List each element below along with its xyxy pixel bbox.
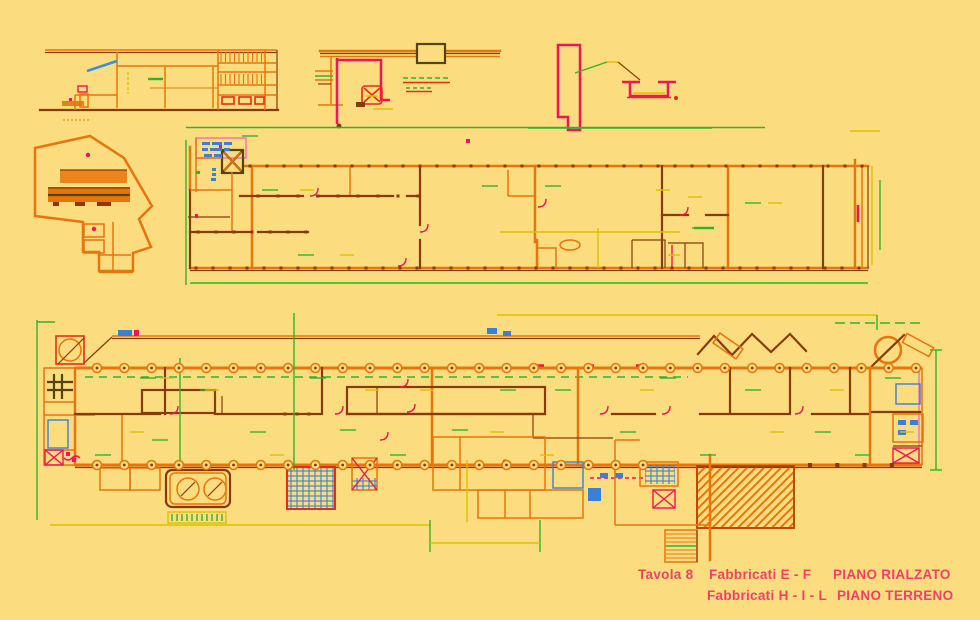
site-plan-drawing [35, 136, 152, 273]
lower-floor-plan [37, 313, 942, 562]
section-drawing [40, 50, 278, 120]
hatched-ramp-1 [713, 333, 743, 359]
tanks-detail [166, 470, 230, 523]
stair-shaft-symbol [222, 150, 243, 173]
center-annex-rooms [433, 437, 643, 522]
hatched-ramp-2 [902, 334, 933, 357]
caption-fabbricati-2: Fabbricati H - I - L [707, 588, 827, 603]
riser-detail-drawing [528, 45, 712, 130]
caption-fabbricati-1: Fabbricati E - F [709, 567, 811, 582]
caption-tavola: Tavola 8 [638, 567, 693, 582]
wc-block-1 [287, 467, 335, 509]
drawing-sheet: Tavola 8 Fabbricati E - F PIANO RIALZATO… [0, 0, 980, 620]
fan-symbol-right [872, 335, 904, 366]
stairs-detail [665, 530, 697, 562]
wc-detail-drawing [315, 44, 500, 129]
hatched-zone [697, 466, 794, 528]
upper-floor-plan [186, 128, 880, 286]
fan-symbol-left [56, 336, 84, 364]
caption-piano-2: PIANO TERRENO [837, 588, 953, 603]
caption-piano-1: PIANO RIALZATO [833, 567, 951, 582]
left-stair-annex [44, 368, 95, 465]
cad-canvas [0, 0, 980, 620]
